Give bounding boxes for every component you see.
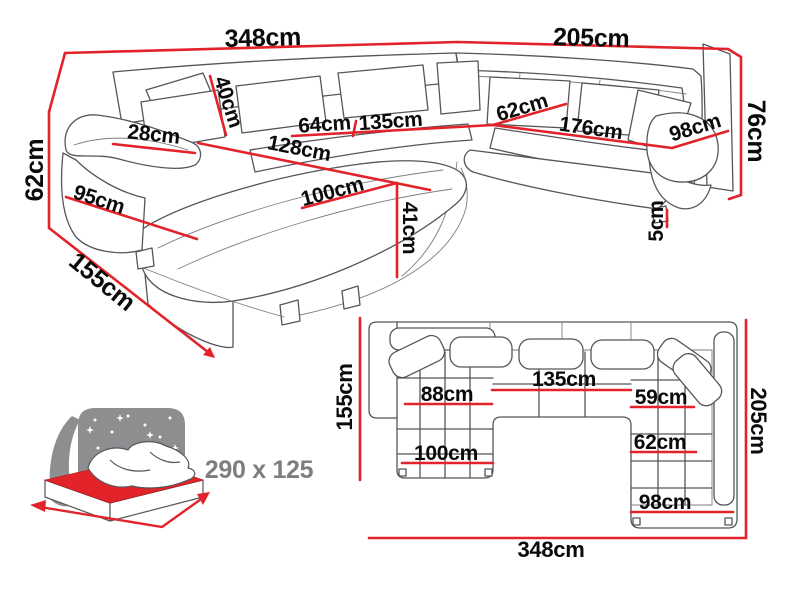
dim-label-middle-seat: 135cm — [358, 108, 423, 135]
plan-label-right-depth: 205cm — [746, 387, 771, 454]
plan-label-chaise-length: 100cm — [414, 442, 478, 465]
perspective-view: 348cm 205cm 76cm 62cm 95cm 28cm 40cm 64c… — [21, 23, 770, 358]
chaise-leg-right — [342, 286, 360, 309]
plan-view: 155cm 348cm 205cm 135cm 88cm 59cm 62cm 9… — [332, 318, 771, 562]
dim-label-leg-height: 5cm — [645, 200, 668, 241]
sleeping-area-icon: 290 x 125 — [30, 408, 314, 527]
dim-label-back-height: 76cm — [742, 100, 770, 163]
plan-leg-2 — [485, 469, 492, 476]
diagram-canvas: 348cm 205cm 76cm 62cm 95cm 28cm 40cm 64c… — [0, 0, 800, 600]
dim-extension-left — [49, 53, 65, 112]
plan-label-right-seat-depth: 62cm — [634, 431, 687, 454]
plan-pillow-3 — [591, 340, 654, 369]
dim-tick-back-height — [729, 195, 741, 199]
plan-leg-1 — [399, 469, 406, 476]
plan-pillow-2 — [519, 339, 583, 369]
plan-pillow-1 — [450, 337, 512, 367]
dim-label-chaise-depth: 155cm — [64, 247, 141, 317]
dim-label-arm-height: 62cm — [21, 139, 49, 202]
arrow-head-left — [30, 500, 46, 512]
sofa-dimensions-diagram: 348cm 205cm 76cm 62cm 95cm 28cm 40cm 64c… — [0, 0, 800, 600]
plan-label-corner-seat: 59cm — [635, 386, 688, 409]
plan-leg-3 — [633, 518, 640, 525]
left-armrest-leg — [136, 248, 154, 269]
plan-label-chaise-width: 88cm — [421, 383, 474, 406]
plan-label-right-section: 98cm — [639, 491, 692, 514]
plan-label-middle-seat: 135cm — [532, 368, 596, 391]
chaise-leg-front — [280, 300, 300, 325]
plan-leg-4 — [725, 518, 732, 525]
plan-label-total-width: 348cm — [517, 537, 584, 562]
dim-label-right-width: 205cm — [553, 23, 630, 53]
sleeping-size-label: 290 x 125 — [205, 456, 314, 484]
dim-label-seat-height: 41cm — [398, 202, 421, 255]
plan-label-left-depth: 155cm — [332, 363, 357, 430]
dim-label-total-width: 348cm — [224, 23, 301, 53]
back-cushion-corner — [437, 61, 480, 114]
dim-label-seat-depth: 64cm — [298, 111, 352, 138]
plan-back-cushion-right — [714, 332, 734, 505]
